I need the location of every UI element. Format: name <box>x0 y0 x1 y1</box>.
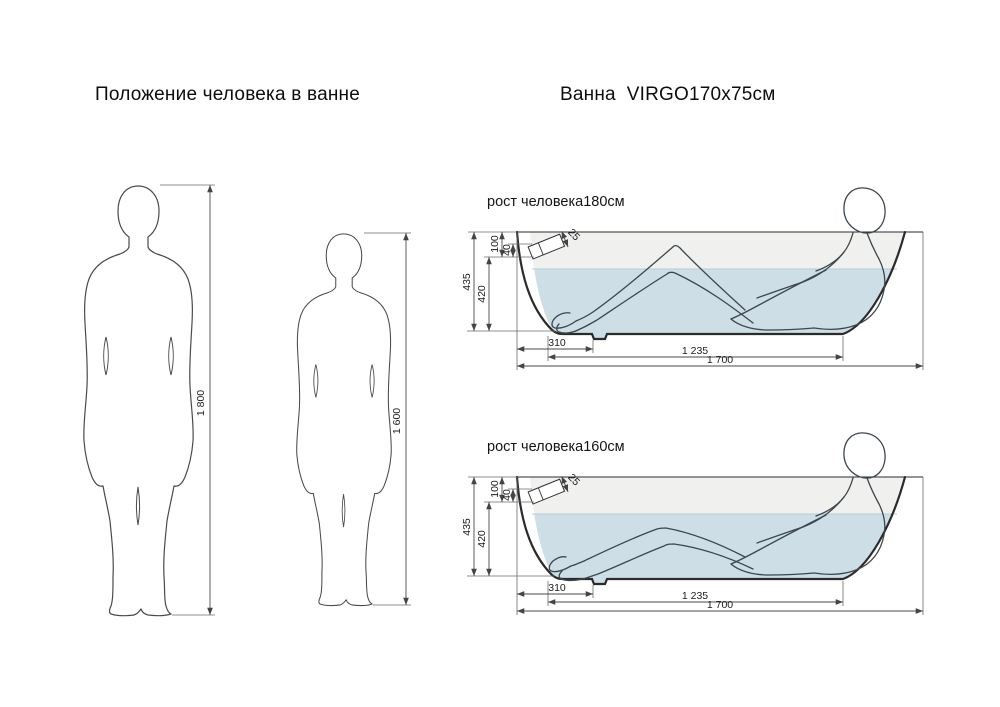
person-silhouette-front <box>84 186 193 616</box>
dim-top-offset: 100 <box>489 480 501 498</box>
drawing-sheet: Положение человека в ванне Ванна VIRGO17… <box>0 0 1000 707</box>
body-outline <box>297 234 392 606</box>
tub-caption: рост человека180см <box>487 194 625 210</box>
dim-top-offset: 100 <box>489 235 501 253</box>
dim-foot-length: 310 <box>548 582 566 594</box>
height-label-1600: 1 600 <box>391 408 403 434</box>
tub-caption: рост человека160см <box>487 439 625 455</box>
figure-person-180: 1 800 <box>60 175 225 640</box>
person-silhouette-front <box>297 234 392 606</box>
dim-small-offset: 40 <box>501 489 513 501</box>
head <box>844 188 885 233</box>
dim-foot-length: 310 <box>548 337 566 349</box>
height-label-1800: 1 800 <box>195 390 207 416</box>
dim-total-depth: 435 <box>461 273 473 291</box>
dim-inner-depth: 420 <box>476 285 488 303</box>
title-bath-model: Ванна VIRGO170x75см <box>560 84 775 106</box>
dim-overall-length: 1 700 <box>707 354 733 366</box>
dim-bottom-length: 1 235 <box>682 345 708 357</box>
dim-overall-length: 1 700 <box>707 599 733 611</box>
tub-section-180: рост человека180см 25 <box>460 180 940 380</box>
head <box>844 433 885 478</box>
body-outline <box>84 186 193 616</box>
dim-inner-depth: 420 <box>476 530 488 548</box>
figure-person-160: 1 600 <box>278 223 418 623</box>
tub-section-160: рост человека160см 25 <box>460 425 940 625</box>
dim-small-offset: 40 <box>501 244 513 256</box>
title-person-position: Положение человека в ванне <box>95 84 360 106</box>
dim-bottom-length: 1 235 <box>682 590 708 602</box>
dim-total-depth: 435 <box>461 518 473 536</box>
